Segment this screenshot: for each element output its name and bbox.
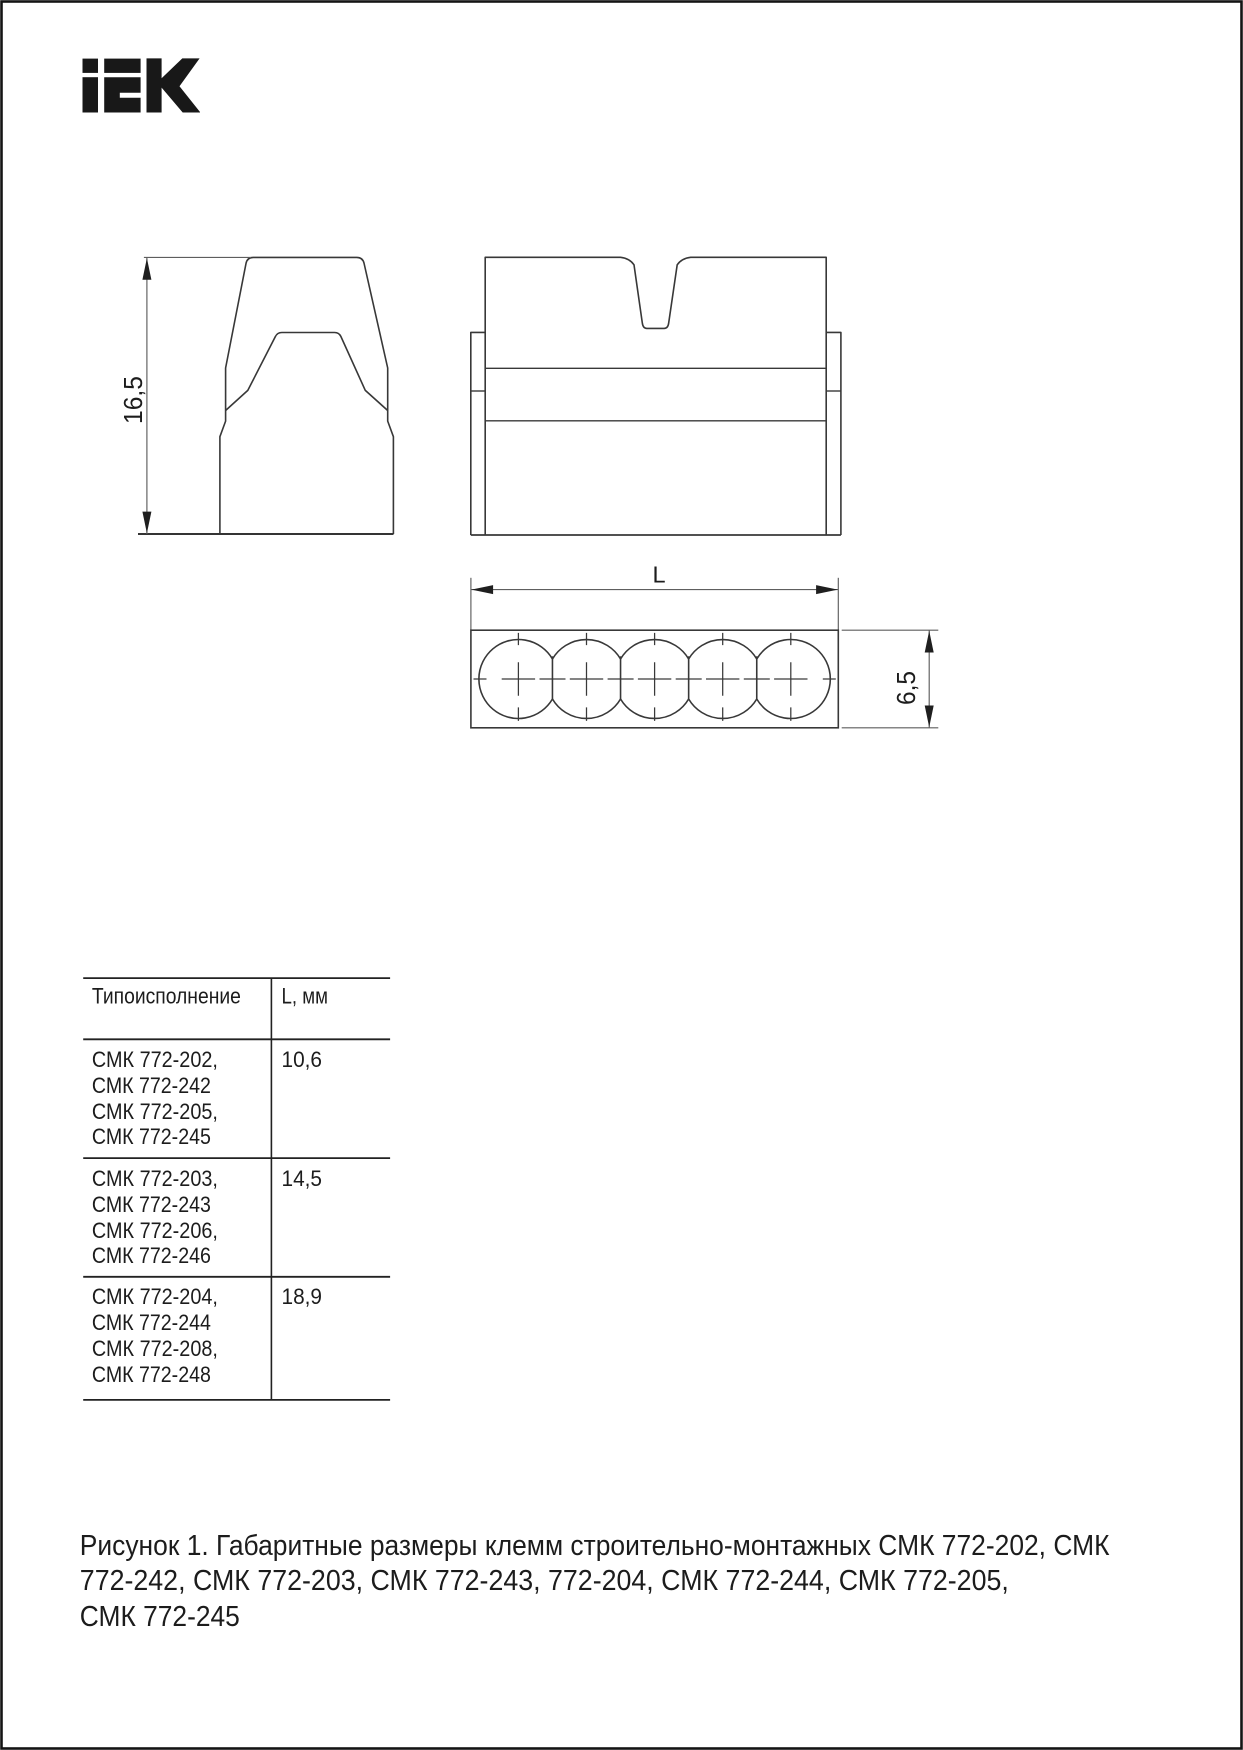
- svg-text:L, мм: L, мм: [282, 984, 329, 1009]
- svg-text:14,5: 14,5: [282, 1166, 323, 1191]
- svg-text:СМК 772-203,: СМК 772-203,: [92, 1166, 218, 1191]
- svg-text:16,5: 16,5: [118, 376, 148, 424]
- svg-text:L: L: [653, 561, 666, 587]
- svg-text:СМК 772-205,: СМК 772-205,: [92, 1099, 218, 1124]
- svg-text:Типоисполнение: Типоисполнение: [92, 984, 241, 1009]
- svg-text:СМК 772-245: СМК 772-245: [80, 1601, 240, 1633]
- svg-text:10,6: 10,6: [282, 1047, 323, 1072]
- svg-text:СМК 772-244: СМК 772-244: [92, 1310, 211, 1335]
- svg-text:СМК 772-243: СМК 772-243: [92, 1192, 211, 1217]
- svg-text:6,5: 6,5: [891, 671, 921, 705]
- svg-text:СМК 772-208,: СМК 772-208,: [92, 1336, 218, 1361]
- svg-text:СМК 772-248: СМК 772-248: [92, 1362, 211, 1387]
- svg-text:Рисунок 1. Габаритные размеры: Рисунок 1. Габаритные размеры клемм стро…: [80, 1530, 1110, 1562]
- svg-text:СМК 772-202,: СМК 772-202,: [92, 1047, 218, 1072]
- svg-text:СМК 772-246: СМК 772-246: [92, 1243, 211, 1268]
- svg-text:18,9: 18,9: [282, 1284, 323, 1309]
- svg-text:СМК 772-245: СМК 772-245: [92, 1124, 211, 1149]
- svg-text:СМК 772-242: СМК 772-242: [92, 1073, 211, 1098]
- svg-text:СМК 772-206,: СМК 772-206,: [92, 1218, 218, 1243]
- svg-text:772-242, СМК 772-203, СМК 772-: 772-242, СМК 772-203, СМК 772-243, 772-2…: [80, 1565, 1009, 1597]
- svg-text:СМК 772-204,: СМК 772-204,: [92, 1284, 218, 1309]
